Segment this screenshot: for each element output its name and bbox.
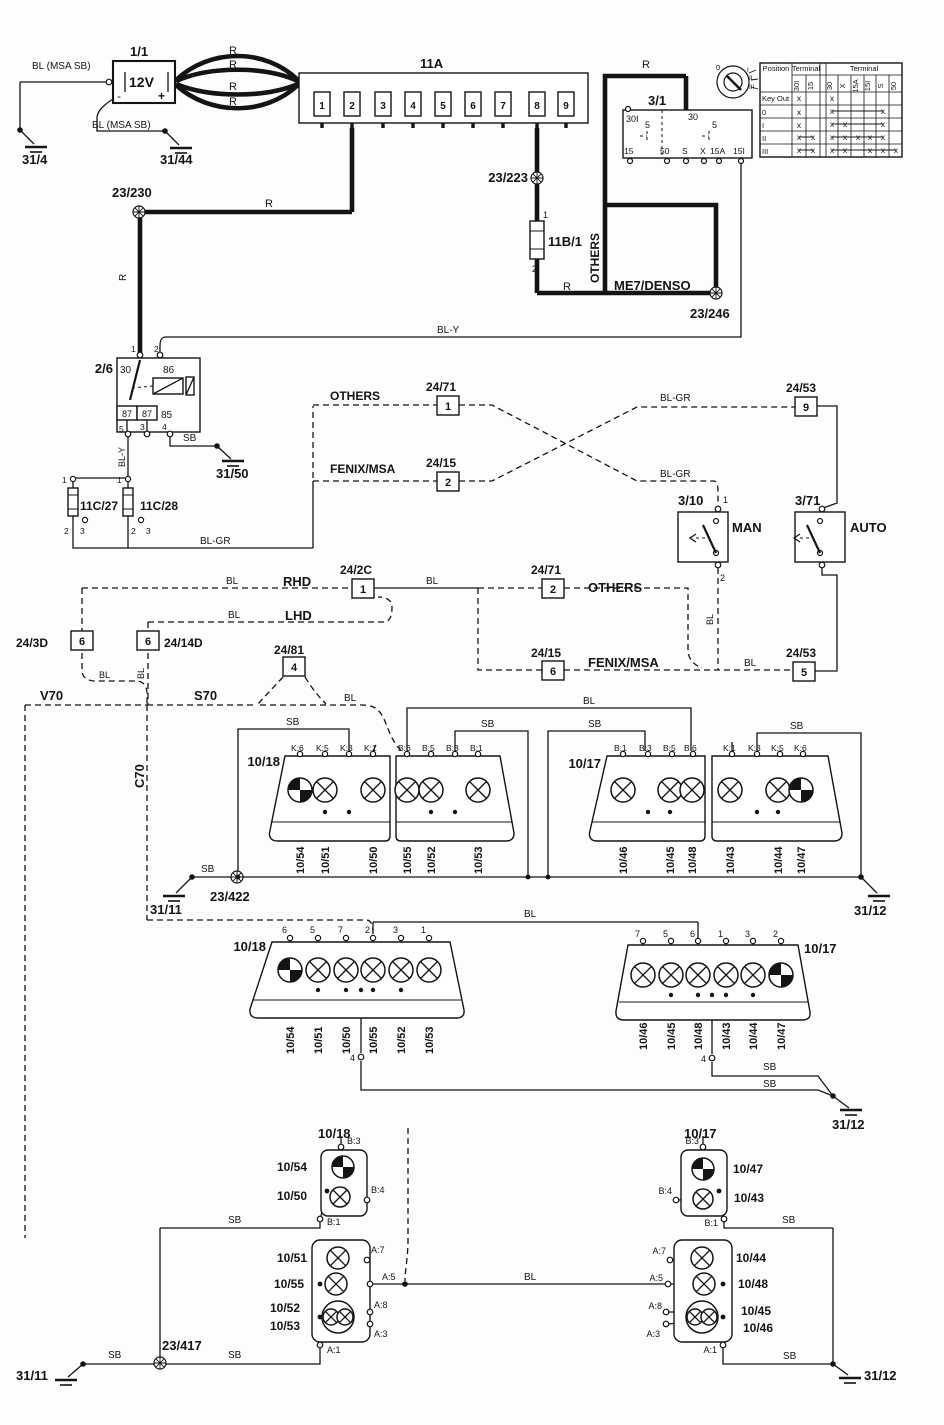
svg-text:2: 2	[365, 925, 370, 935]
connector-24-53b-label: 24/53	[786, 646, 816, 660]
svg-text:10/43: 10/43	[734, 1191, 764, 1205]
svg-text:SB: SB	[228, 1350, 242, 1361]
svg-text:10/52: 10/52	[426, 846, 438, 874]
svg-text:A:3: A:3	[646, 1329, 660, 1339]
svg-text:10/51: 10/51	[313, 1026, 325, 1054]
fenix-label-1: FENIX/MSA	[330, 462, 396, 476]
svg-text:10/51: 10/51	[277, 1251, 307, 1265]
svg-text:B:3: B:3	[446, 743, 459, 753]
svg-text:B:6: B:6	[398, 743, 411, 753]
svg-text:3: 3	[140, 422, 145, 432]
svg-text:5: 5	[440, 101, 446, 112]
splice-23-417-label: 23/417	[162, 1338, 202, 1353]
battery-minus: -	[117, 89, 121, 103]
wire-label-bly: BL-Y	[437, 325, 460, 336]
svg-text:5: 5	[663, 929, 668, 939]
svg-text:SB: SB	[763, 1062, 777, 1073]
wire-label-bl: BL	[226, 576, 239, 587]
svg-text:10/55: 10/55	[402, 846, 414, 874]
svg-text:BL: BL	[524, 909, 537, 920]
svg-text:6: 6	[282, 925, 287, 935]
svg-text:31/12: 31/12	[864, 1368, 897, 1383]
svg-text:10/45: 10/45	[666, 1022, 678, 1050]
svg-text:4: 4	[350, 1053, 355, 1063]
svg-text:1: 1	[723, 495, 728, 505]
relay-2-6: 2/6 1 2 30 86 87 87 85 5 3 4	[95, 344, 200, 437]
wire-label-sb: SB	[183, 433, 197, 444]
svg-text:11C/28: 11C/28	[140, 499, 178, 513]
svg-text:A:1: A:1	[703, 1345, 717, 1355]
svg-text:3: 3	[146, 526, 151, 536]
svg-text:K:5: K:5	[771, 743, 784, 753]
svg-text:A:7: A:7	[371, 1245, 385, 1255]
wire-label-bl: BL	[228, 610, 241, 621]
connector-24-3d-label: 24/3D	[16, 636, 48, 650]
svg-text:6: 6	[79, 636, 85, 648]
svg-text:9: 9	[803, 402, 809, 414]
svg-text:II: II	[762, 134, 766, 143]
wire-label-bly-rot: BL-Y	[117, 447, 127, 467]
svg-text:7: 7	[500, 101, 506, 112]
lhd-label: LHD	[285, 608, 312, 623]
svg-text:2/6: 2/6	[95, 361, 113, 376]
cluster-row1: SB SB SB SB BL 10/18 10/17 K:6 K:5 K:3 K…	[247, 696, 842, 874]
svg-text:I: I	[762, 121, 764, 130]
row1-lamps	[288, 778, 813, 802]
svg-text:K:6: K:6	[794, 743, 807, 753]
thin-wires	[20, 82, 877, 1377]
cluster-10-17-row2-label: 10/17	[804, 941, 837, 956]
splice-23-230-icon	[133, 206, 145, 218]
svg-text:2: 2	[532, 264, 537, 274]
cluster-10-18-row3-label: 10/18	[318, 1126, 351, 1141]
splice-23-246-label: 23/246	[690, 306, 730, 321]
fenix-label-2: FENIX/MSA	[588, 655, 659, 670]
svg-text:15A: 15A	[851, 79, 860, 92]
svg-text:K:3: K:3	[340, 743, 353, 753]
key-icon: 0 I II III	[716, 63, 758, 98]
ground-31-50: 31/50	[216, 461, 249, 481]
svg-text:11B/1: 11B/1	[548, 234, 582, 249]
svg-text:87: 87	[142, 409, 152, 419]
svg-text:2: 2	[550, 584, 556, 596]
others-label-2: OTHERS	[588, 580, 643, 595]
junction-dots	[17, 127, 864, 1367]
me7-denso-label: ME7/DENSO	[614, 278, 691, 293]
svg-text:B:5: B:5	[663, 743, 676, 753]
svg-text:SB: SB	[286, 717, 300, 728]
battery-voltage: 12V	[129, 74, 155, 90]
battery-id: 1/1	[130, 44, 148, 59]
svg-text:6: 6	[690, 929, 695, 939]
svg-text:3: 3	[80, 526, 85, 536]
svg-text:S: S	[876, 83, 885, 88]
svg-text:SB: SB	[588, 719, 602, 730]
svg-text:S: S	[682, 146, 688, 156]
ground-31-4: 31/4	[22, 147, 48, 167]
svg-text:30I: 30I	[792, 81, 801, 91]
others-vertical-label: OTHERS	[588, 233, 602, 283]
svg-text:K:1: K:1	[364, 743, 377, 753]
svg-text:1: 1	[62, 475, 67, 485]
svg-text:B:1: B:1	[327, 1217, 341, 1227]
svg-text:5: 5	[310, 925, 315, 935]
wire-label-sb: SB	[108, 1350, 122, 1361]
ground-31-44: 31/44	[160, 148, 193, 167]
svg-text:1: 1	[117, 475, 122, 485]
svg-text:4: 4	[701, 1054, 706, 1064]
svg-text:10/48: 10/48	[693, 1022, 705, 1050]
svg-text:A:3: A:3	[374, 1329, 388, 1339]
splice-23-223-icon	[531, 172, 543, 184]
svg-text:31/4: 31/4	[22, 152, 48, 167]
cluster-row3-right: 10/17 B:3 10/47 10/43 B:4 B:1 SB 10/44 A…	[646, 1126, 796, 1362]
svg-text:10/45: 10/45	[665, 846, 677, 874]
svg-text:2: 2	[720, 573, 725, 583]
svg-text:B:3: B:3	[347, 1136, 361, 1146]
svg-text:2: 2	[773, 929, 778, 939]
connector-24-14d-label: 24/14D	[164, 636, 203, 650]
svg-text:Position: Position	[763, 64, 790, 73]
svg-text:10/46: 10/46	[638, 1022, 650, 1050]
svg-text:15: 15	[806, 82, 815, 90]
svg-text:10/54: 10/54	[277, 1160, 307, 1174]
svg-text:0: 0	[716, 63, 720, 72]
svg-text:K:5: K:5	[316, 743, 329, 753]
svg-text:A:5: A:5	[382, 1272, 396, 1282]
svg-text:Terminal: Terminal	[850, 64, 879, 73]
v70-label: V70	[40, 688, 63, 703]
wire-label-r: R	[642, 59, 650, 71]
svg-text:10/46: 10/46	[618, 846, 630, 874]
svg-text:5: 5	[801, 667, 807, 679]
connector-24-71-label: 24/71	[426, 380, 456, 394]
svg-text:B:1: B:1	[614, 743, 627, 753]
svg-text:1: 1	[360, 584, 366, 596]
svg-text:K:1: K:1	[723, 743, 736, 753]
svg-text:B:3: B:3	[639, 743, 652, 753]
svg-text:10/52: 10/52	[270, 1301, 300, 1315]
svg-text:10/47: 10/47	[733, 1162, 763, 1176]
fusebox-id: 11A	[420, 56, 444, 71]
wire-label-blgr: BL-GR	[200, 536, 231, 547]
others-label-1: OTHERS	[330, 389, 380, 403]
cluster-10-17-label: 10/17	[568, 756, 601, 771]
ground-31-12-row2: 31/12	[832, 1110, 865, 1132]
svg-text:15I: 15I	[733, 146, 745, 156]
svg-text:0: 0	[762, 108, 766, 117]
svg-text:A:8: A:8	[374, 1300, 388, 1310]
connector-24-53-label: 24/53	[786, 381, 816, 395]
svg-text:10/43: 10/43	[725, 846, 737, 874]
svg-text:III: III	[749, 84, 755, 91]
wire-label-bl: BL	[99, 670, 110, 680]
svg-text:7: 7	[338, 925, 343, 935]
svg-text:2: 2	[131, 526, 136, 536]
svg-text:10/55: 10/55	[274, 1277, 304, 1291]
svg-text:B:3: B:3	[685, 1136, 699, 1146]
s70-label: S70	[194, 688, 217, 703]
splice-23-223-label: 23/223	[488, 170, 528, 185]
svg-text:SB: SB	[783, 1351, 797, 1362]
svg-text:B:4: B:4	[658, 1186, 672, 1196]
wire-label-r: R	[229, 81, 237, 93]
svg-text:1: 1	[718, 929, 723, 939]
svg-text:2: 2	[445, 477, 451, 489]
svg-text:X: X	[838, 83, 847, 88]
splice-23-246-icon	[710, 287, 722, 299]
svg-text:15I: 15I	[863, 81, 872, 91]
c70-label: C70	[132, 764, 147, 788]
ignition-position-table: Position Terminal Terminal 30I 15 30 X 1…	[760, 63, 902, 157]
svg-text:8: 8	[534, 101, 540, 112]
svg-text:1: 1	[421, 925, 426, 935]
battery-1-1: 1/1 12V - +	[106, 44, 175, 103]
svg-text:2: 2	[349, 101, 355, 112]
wire-label-blgr: BL-GR	[660, 393, 691, 404]
svg-text:10/51: 10/51	[320, 846, 332, 874]
battery-plus: +	[158, 89, 165, 103]
svg-text:II: II	[749, 75, 753, 82]
svg-text:10/43: 10/43	[721, 1022, 733, 1050]
svg-text:10/52: 10/52	[396, 1026, 408, 1054]
switch-3-10-man: 3/10 1 MAN 2	[678, 493, 762, 583]
rhd-label: RHD	[283, 574, 311, 589]
svg-text:31/44: 31/44	[160, 152, 193, 167]
svg-text:10/55: 10/55	[368, 1026, 380, 1054]
svg-text:10/47: 10/47	[776, 1022, 788, 1050]
svg-text:30: 30	[120, 365, 132, 376]
svg-text:10/54: 10/54	[285, 1026, 297, 1054]
wire-label-bl-msa-2: BL (MSA SB)	[92, 120, 151, 131]
svg-text:31/50: 31/50	[216, 466, 249, 481]
svg-text:15A: 15A	[710, 146, 725, 156]
svg-text:10/46: 10/46	[743, 1321, 773, 1335]
svg-text:10/50: 10/50	[277, 1189, 307, 1203]
splice-23-422-label: 23/422	[210, 889, 250, 904]
svg-text:MAN: MAN	[732, 520, 762, 535]
svg-text:3: 3	[745, 929, 750, 939]
connector-24-15-label: 24/15	[426, 456, 456, 470]
wire-label-bl-rot: BL	[705, 614, 715, 625]
wire-label-blgr: BL-GR	[660, 469, 691, 480]
ground-31-11-row1: 31/11	[150, 896, 185, 917]
svg-text:6: 6	[470, 101, 476, 112]
svg-text:AUTO: AUTO	[850, 520, 887, 535]
svg-text:10/50: 10/50	[368, 846, 380, 874]
svg-text:4: 4	[410, 101, 416, 112]
svg-text:B:6: B:6	[684, 743, 697, 753]
svg-text:3: 3	[380, 101, 386, 112]
wire-label-r: R	[265, 198, 273, 210]
svg-text:5: 5	[712, 120, 717, 130]
svg-text:10/44: 10/44	[748, 1022, 760, 1050]
ignition-id: 3/1	[648, 93, 666, 108]
svg-text:SB: SB	[790, 721, 804, 732]
svg-text:SB: SB	[782, 1215, 796, 1226]
svg-text:30: 30	[688, 112, 698, 122]
svg-text:31/11: 31/11	[150, 902, 182, 917]
svg-text:4: 4	[291, 662, 298, 674]
svg-text:A:5: A:5	[649, 1273, 663, 1283]
svg-text:10/44: 10/44	[736, 1251, 766, 1265]
svg-text:5: 5	[645, 120, 650, 130]
svg-text:3: 3	[393, 925, 398, 935]
splice-23-230-label: 23/230	[112, 185, 152, 200]
svg-text:Key Out: Key Out	[762, 94, 790, 103]
wire-label-bl: BL	[744, 658, 757, 669]
cluster-row2: BL 10/18 10/17 6 5 7 2 3 1 7 5 6 1 3 2 1…	[233, 909, 836, 1090]
svg-text:10/47: 10/47	[796, 846, 808, 874]
svg-text:2: 2	[64, 526, 69, 536]
wire-label-r: R	[229, 45, 237, 57]
svg-text:50: 50	[660, 146, 670, 156]
ground-31-12-row1: 31/12	[854, 896, 890, 918]
switch-3-71-auto: 3/71 AUTO	[794, 493, 887, 568]
svg-text:1: 1	[543, 210, 548, 220]
connector-24-81-label: 24/81	[274, 643, 304, 657]
svg-text:A:1: A:1	[327, 1345, 341, 1355]
svg-text:1: 1	[131, 344, 136, 354]
svg-text:A:8: A:8	[648, 1301, 662, 1311]
svg-text:6: 6	[550, 666, 556, 678]
svg-text:1: 1	[319, 101, 325, 112]
wire-label-bl: BL	[344, 693, 357, 704]
wire-label-bl-rot: BL	[136, 668, 146, 679]
svg-text:7: 7	[635, 929, 640, 939]
svg-text:31/12: 31/12	[832, 1117, 865, 1132]
svg-text:9: 9	[563, 101, 569, 112]
wire-label-bl: BL	[524, 1272, 537, 1283]
svg-text:10/44: 10/44	[773, 846, 785, 874]
svg-text:10/53: 10/53	[270, 1319, 300, 1333]
wiring-diagram-page: 1/1 12V - + BL (MSA SB) BL (MSA SB) R R …	[0, 0, 944, 1425]
svg-text:10/54: 10/54	[295, 846, 307, 874]
svg-text:5: 5	[119, 424, 124, 434]
svg-text:Terminal: Terminal	[792, 64, 821, 73]
svg-text:10/50: 10/50	[341, 1026, 353, 1054]
svg-text:K:3: K:3	[748, 743, 761, 753]
svg-text:BL: BL	[583, 696, 596, 707]
svg-text:10/48: 10/48	[738, 1277, 768, 1291]
svg-text:15: 15	[624, 146, 634, 156]
cluster-10-18-row2-label: 10/18	[233, 939, 266, 954]
svg-text:31/12: 31/12	[854, 903, 887, 918]
svg-text:X: X	[700, 146, 706, 156]
svg-text:III: III	[762, 147, 768, 156]
wire-label-r: R	[229, 59, 237, 71]
wire-label-r-rot: R	[118, 274, 129, 281]
svg-text:1: 1	[445, 401, 451, 413]
svg-text:10/53: 10/53	[473, 846, 485, 874]
svg-text:B:1: B:1	[470, 743, 483, 753]
svg-text:SB: SB	[481, 719, 495, 730]
wire-label-bl-msa: BL (MSA SB)	[32, 61, 91, 72]
svg-text:6: 6	[145, 636, 151, 648]
svg-text:10/48: 10/48	[687, 846, 699, 874]
wire-label-sb: SB	[201, 864, 215, 875]
svg-text:SB: SB	[763, 1079, 777, 1090]
svg-text:86: 86	[163, 365, 175, 376]
connector-24-71b-label: 24/71	[531, 563, 561, 577]
svg-text:SB: SB	[228, 1215, 242, 1226]
connector-24-15b-label: 24/15	[531, 646, 561, 660]
svg-text:3/10: 3/10	[678, 493, 703, 508]
svg-text:A:7: A:7	[652, 1246, 666, 1256]
svg-text:87: 87	[122, 409, 132, 419]
wire-label-r: R	[563, 281, 571, 293]
connector-24-2c-label: 24/2C	[340, 563, 372, 577]
svg-text:B:1: B:1	[704, 1218, 718, 1228]
svg-text:10/45: 10/45	[741, 1304, 771, 1318]
fuses-11c: 1 1 11C/27 11C/28 2 3 2 3	[62, 475, 178, 536]
svg-text:30: 30	[825, 82, 834, 90]
svg-text:B:4: B:4	[371, 1185, 385, 1195]
wire-label-r: R	[229, 96, 237, 108]
wire-label-bl: BL	[426, 576, 439, 587]
svg-text:85: 85	[161, 410, 173, 421]
cluster-row3-left: 10/18 B:3 10/54 10/50 B:4 B:1 SB 10/51 A…	[228, 1126, 396, 1361]
svg-text:30I: 30I	[626, 114, 639, 124]
svg-text:K:6: K:6	[291, 743, 304, 753]
fusebox-11a: 11A 1 2 3 4 5 6 7 8 9	[299, 56, 588, 123]
splice-23-417-icon	[154, 1357, 166, 1369]
svg-text:10/53: 10/53	[424, 1026, 436, 1054]
svg-text:31/11: 31/11	[16, 1368, 48, 1383]
svg-text:11C/27: 11C/27	[80, 499, 118, 513]
cluster-10-18-label: 10/18	[247, 754, 280, 769]
svg-text:I: I	[747, 67, 749, 74]
svg-text:B:5: B:5	[422, 743, 435, 753]
svg-text:4: 4	[162, 422, 167, 432]
svg-text:3/71: 3/71	[795, 493, 820, 508]
wiring-diagram: 1/1 12V - + BL (MSA SB) BL (MSA SB) R R …	[0, 0, 944, 1425]
svg-text:50: 50	[889, 82, 898, 90]
